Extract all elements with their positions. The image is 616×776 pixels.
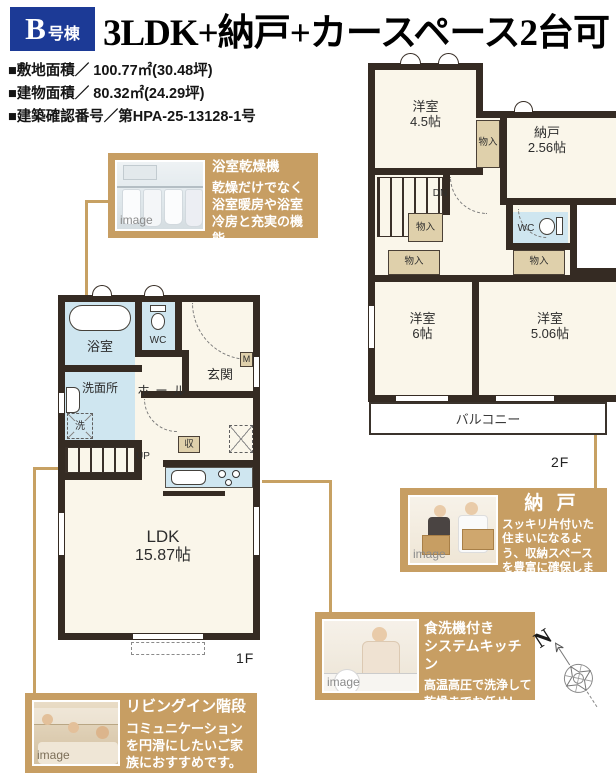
window-icon: [496, 395, 554, 402]
wall: [58, 295, 260, 302]
nando-photo: image: [408, 495, 498, 565]
connector-living-stairs: [33, 467, 36, 694]
stove-burner-icon: [225, 479, 232, 486]
wall: [58, 365, 142, 372]
window-icon: [133, 633, 203, 640]
bath-dryer-photo: image: [115, 160, 205, 231]
callout-text: 食洗機付き システムキッチン 高温高圧で洗浄して乾燥までお任せ！: [424, 619, 532, 711]
callout-title: 浴室乾燥機: [212, 159, 314, 176]
wall: [368, 275, 616, 282]
family-photo: image: [32, 700, 120, 766]
window-icon: [58, 393, 65, 413]
window-icon: [253, 357, 260, 387]
window-icon: [396, 395, 448, 402]
counter-edge: [163, 491, 225, 496]
closet-label: 物入: [388, 256, 440, 267]
compass-north-label: N: [531, 623, 556, 653]
kitchen-sink-icon: [171, 470, 206, 485]
washer-space: 洗: [67, 413, 93, 439]
room-size: 4.5帖: [383, 114, 468, 129]
kitchen-photo: image: [322, 619, 419, 693]
callout-nando: image 納 戸 スッキリ片付いた住まいになるよう、収納スペースを豊富に確保し…: [400, 488, 607, 572]
wall: [135, 350, 182, 357]
closet-label: 物入: [408, 222, 443, 233]
room-size: 15.87帖: [108, 547, 218, 566]
door-icon: [92, 285, 112, 296]
callout-text: 納 戸 スッキリ片付いた住まいになるよう、収納スペースを豊富に確保しました。: [502, 492, 602, 590]
flyer-canvas: B 号棟 3LDK+納戸+カースペース2台可 ■敷地面積／ 100.77㎡(30…: [0, 0, 616, 776]
image-watermark: image: [413, 547, 446, 561]
wall: [58, 295, 65, 640]
storage-label: 収: [178, 439, 200, 450]
photo-shape: [164, 189, 183, 225]
room-label-ldk: LDK 15.87帖: [108, 527, 218, 566]
connector-dryer: [85, 200, 88, 295]
meter-label: M: [240, 354, 253, 365]
wall: [500, 111, 507, 205]
compass-icon: N: [531, 612, 615, 722]
room-name: 洋室: [380, 311, 465, 326]
callout-title-line2: システムキッチン: [424, 637, 532, 673]
connector-dryer: [85, 200, 110, 203]
photo-shape: [68, 722, 79, 733]
image-watermark: image: [37, 748, 70, 762]
callout-text: リビングイン階段 コミュニケーションを円滑にしたいご家族におすすめです。: [126, 698, 252, 771]
wall: [368, 168, 483, 175]
callout-kitchen: image 食洗機付き システムキッチン 高温高圧で洗浄して乾燥までお任せ！: [315, 612, 535, 700]
callout-body: 高温高圧で洗浄して乾燥までお任せ！: [424, 677, 532, 711]
room-label-nando: 納戸 2.56帖: [507, 125, 587, 156]
room-label-yoshitsu506: 洋室 5.06帖: [480, 311, 616, 342]
toilet-icon: [151, 313, 165, 330]
wall: [506, 243, 577, 250]
door-icon: [144, 285, 164, 296]
window-icon: [368, 306, 375, 348]
wall: [472, 275, 479, 402]
toilet-icon: [150, 305, 166, 312]
wall: [500, 198, 577, 205]
stairs-dn-label: DN: [426, 188, 454, 200]
photo-shape: [372, 627, 387, 642]
connector-living-stairs: [33, 467, 60, 470]
wall: [368, 63, 483, 70]
bathtub-icon: [69, 305, 131, 331]
wall: [476, 63, 483, 118]
balcony-label: バルコニー: [371, 412, 605, 427]
wall: [135, 295, 142, 357]
hall-label: ホ ー ル: [134, 384, 190, 399]
staircase-up: [65, 447, 135, 473]
photo-shape: [42, 714, 53, 725]
room-label-yoshitsu6: 洋室 6帖: [380, 311, 465, 342]
callout-body: コミュニケーションを円滑にしたいご家族におすすめです。: [126, 720, 252, 771]
wall: [175, 295, 182, 357]
floor-label-1f: 1F: [236, 650, 254, 666]
callout-title: 納 戸: [502, 492, 602, 516]
callout-bath-dryer: image 浴室乾燥機 乾燥だけでなく浴室暖房や浴室冷房と充実の機能。: [108, 153, 318, 238]
floor-label-2f: 2F: [551, 454, 569, 470]
closet-label: 物入: [513, 256, 565, 267]
room-name: 納戸: [507, 125, 587, 140]
room-size: 6帖: [380, 326, 465, 341]
image-watermark: image: [327, 675, 360, 689]
wall: [58, 440, 142, 447]
page-title: 3LDK+納戸+カースペース2台可: [103, 2, 609, 56]
spec-permit-number: ■建築確認番号／第HPA-25-13128-1号: [8, 105, 256, 126]
photo-shape: [465, 502, 478, 515]
room-name: LDK: [108, 527, 218, 547]
washroom-label: 洗面所: [72, 381, 128, 395]
refrigerator-space: [229, 425, 253, 453]
toilet-icon: [556, 217, 563, 235]
sink-icon: [66, 387, 80, 413]
callout-title-line1: 食洗機付き: [424, 619, 532, 637]
room-size: 2.56帖: [507, 140, 587, 155]
bath-label: 浴室: [75, 339, 125, 354]
room-size: 5.06帖: [480, 326, 616, 341]
building-badge: B 号棟: [10, 7, 95, 51]
entrance-label: 玄関: [190, 367, 250, 382]
wc-label: WC: [143, 335, 173, 347]
callout-title: 食洗機付き システムキッチン: [424, 619, 532, 673]
photo-shape: [462, 529, 494, 550]
wall: [476, 111, 616, 118]
photo-shape: [123, 165, 157, 180]
callout-title: リビングイン階段: [126, 698, 252, 717]
floorplan-1f: 浴室 WC 玄関 M 洗面所 洗 ホ ー ル UP 収 LDK 15.87帖: [58, 295, 260, 677]
connector-kitchen: [329, 480, 332, 613]
balcony: バルコニー: [369, 402, 607, 435]
badge-suffix: 号棟: [48, 20, 80, 44]
building-notch: [577, 205, 616, 275]
wall: [163, 460, 260, 467]
washer-label: 洗: [74, 421, 86, 432]
photo-shape: [96, 726, 109, 739]
wall: [253, 295, 260, 640]
stove-burner-icon: [218, 470, 226, 478]
door-icon: [514, 101, 533, 112]
spec-building-area: ■建物面積／ 80.32㎡(24.29坪): [8, 82, 205, 103]
callout-body: スッキリ片付いた住まいになるよう、収納スペースを豊富に確保しました。: [502, 518, 602, 591]
floorplan-2f: DN 物入 物入 WC 物入 物入 洋室 4.5帖 納戸 2.56帖 洋室 6帖…: [368, 63, 616, 475]
stove-burner-icon: [232, 470, 240, 478]
stairs-up-label: UP: [136, 451, 166, 463]
wall: [368, 63, 375, 402]
photo-shape: [434, 505, 446, 517]
up-text: UP: [136, 451, 150, 462]
room-name: 洋室: [480, 311, 616, 326]
window-icon: [253, 507, 260, 555]
room-label-yoshitsu45: 洋室 4.5帖: [383, 99, 468, 130]
badge-letter: B: [25, 11, 46, 47]
porch-step: [131, 642, 205, 655]
connector-kitchen: [262, 480, 332, 483]
wall: [570, 268, 616, 275]
callout-living-stairs: image リビングイン階段 コミュニケーションを円滑にしたいご家族におすすめで…: [25, 693, 257, 773]
photo-shape: [185, 189, 203, 227]
image-watermark: image: [120, 213, 153, 227]
callout-body: 乾燥だけでなく浴室暖房や浴室冷房と充実の機能。: [212, 179, 314, 247]
closet-label: 物入: [472, 137, 504, 148]
window-icon: [58, 513, 65, 555]
room-name: 洋室: [383, 99, 468, 114]
photo-shape: [117, 186, 203, 188]
wall: [58, 473, 142, 480]
callout-text: 浴室乾燥機 乾燥だけでなく浴室暖房や浴室冷房と充実の機能。: [212, 159, 314, 247]
spec-land-area: ■敷地面積／ 100.77㎡(30.48坪): [8, 59, 213, 80]
